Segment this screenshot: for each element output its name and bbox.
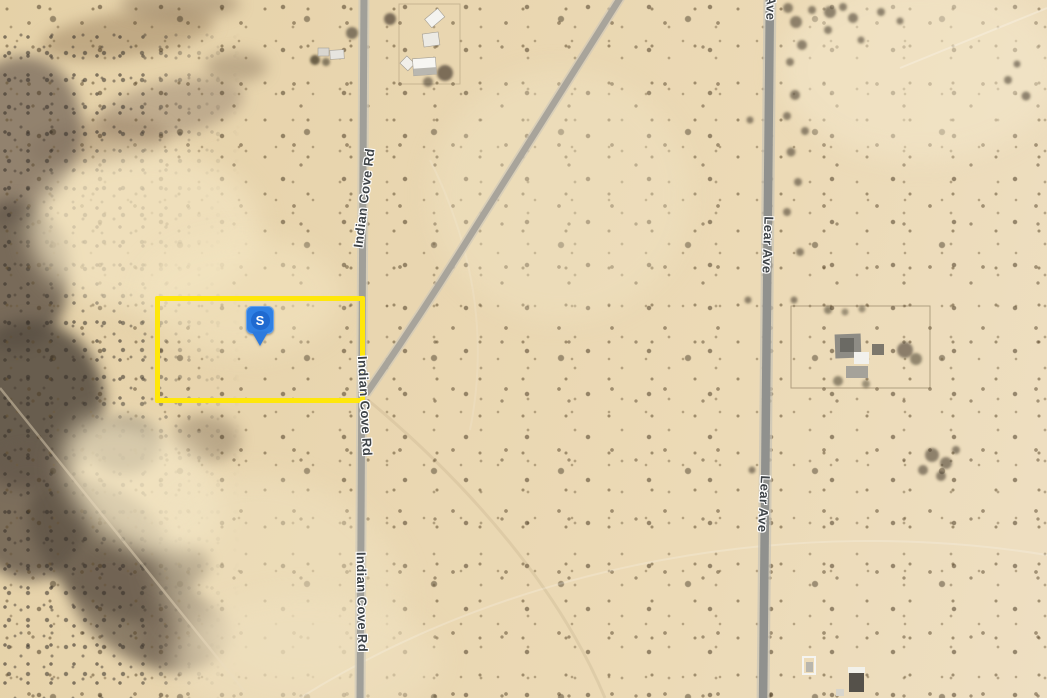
- road-label-lear-ave-mid: Lear Ave: [755, 475, 773, 533]
- buildings-east-property: [824, 306, 922, 389]
- map-marker-tip: [252, 332, 268, 346]
- road-label-lear-ave-north: Lear Ave: [760, 216, 777, 274]
- scrub-clusters: [745, 3, 1031, 481]
- map-marker[interactable]: S: [246, 306, 274, 352]
- road-label-ave-top-partial: Ave: [763, 0, 778, 20]
- buildings-northwest: [310, 48, 344, 66]
- satellite-map-canvas[interactable]: S Indian Cove Rd Indian Cove Rd Indian C…: [0, 0, 1047, 698]
- road-label-indian-cove-rd-south: Indian Cove Rd: [354, 552, 371, 652]
- map-marker-head: S: [246, 306, 274, 334]
- map-marker-label: S: [251, 311, 270, 330]
- buildings-southeast: [803, 657, 865, 696]
- lear-ave-road: [763, 0, 770, 698]
